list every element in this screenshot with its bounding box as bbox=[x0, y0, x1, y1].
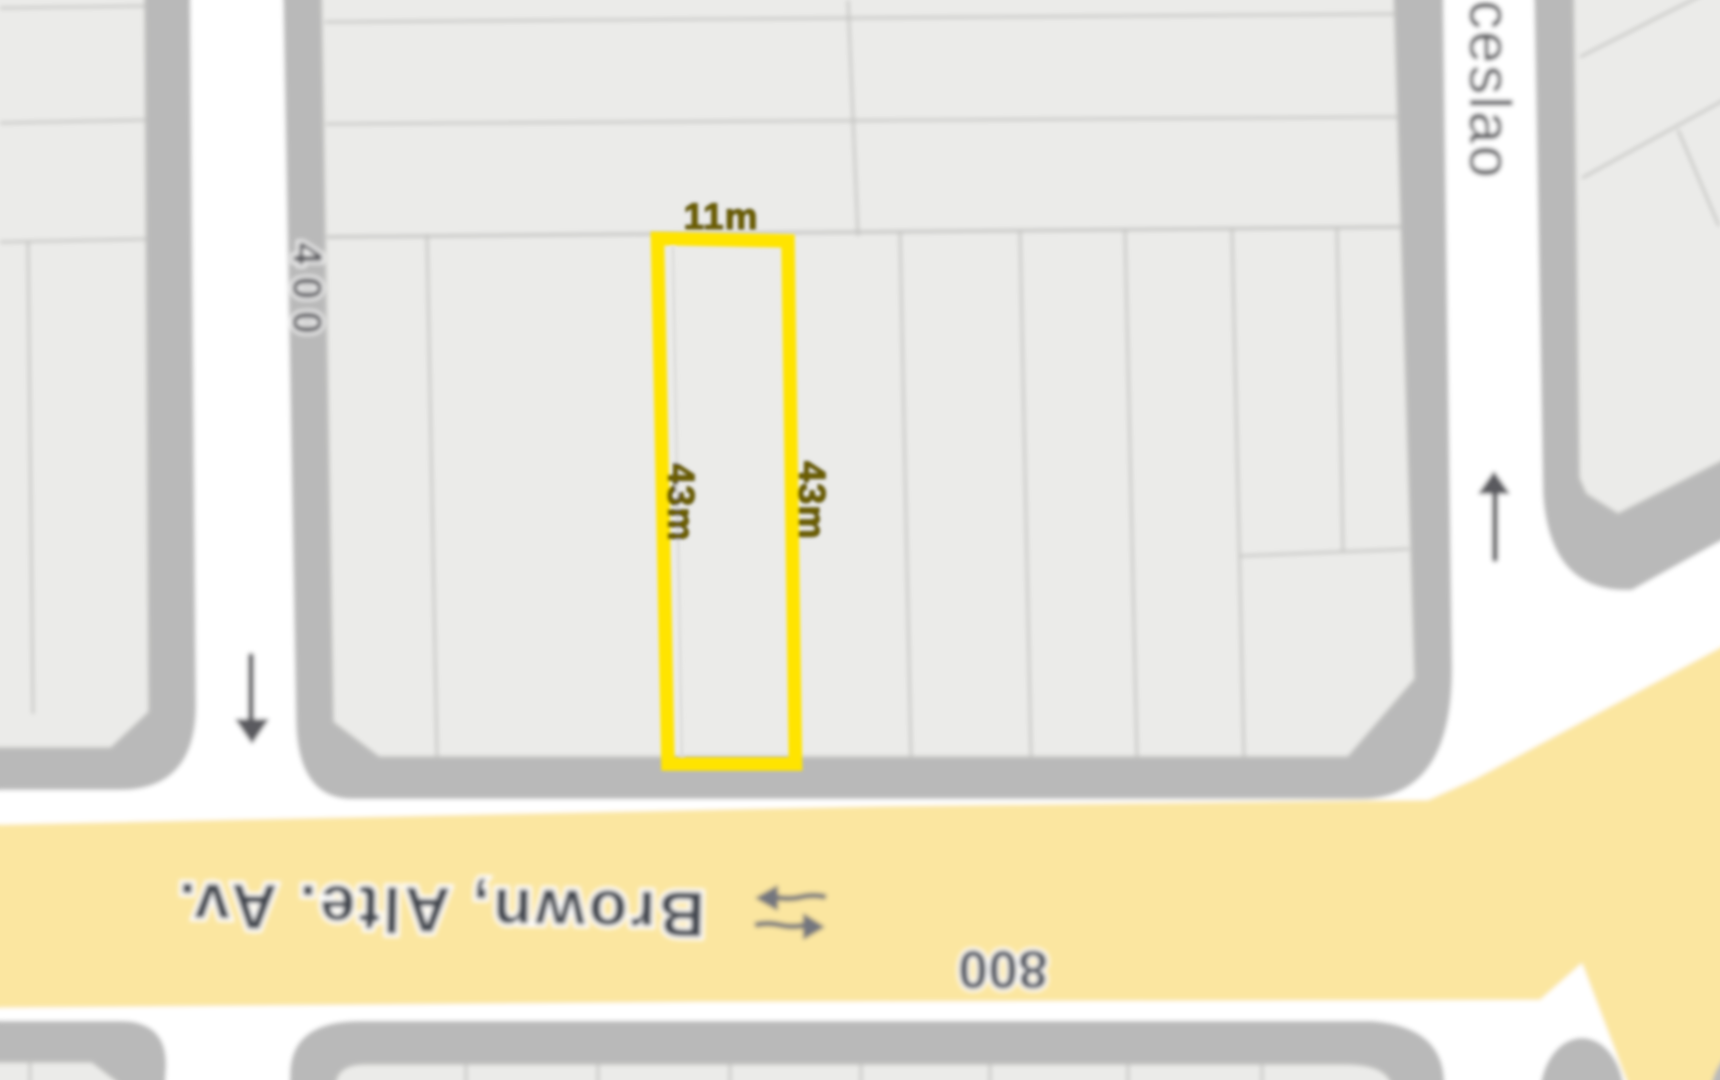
svg-text:800: 800 bbox=[958, 939, 1048, 999]
svg-text:ceslao: ceslao bbox=[1457, 0, 1522, 180]
svg-text:43m: 43m bbox=[659, 463, 701, 542]
svg-text:11m: 11m bbox=[683, 196, 758, 237]
svg-text:400: 400 bbox=[284, 242, 331, 345]
svg-text:43m: 43m bbox=[790, 461, 832, 540]
svg-text:Brown, Alte. Av.: Brown, Alte. Av. bbox=[174, 869, 705, 950]
